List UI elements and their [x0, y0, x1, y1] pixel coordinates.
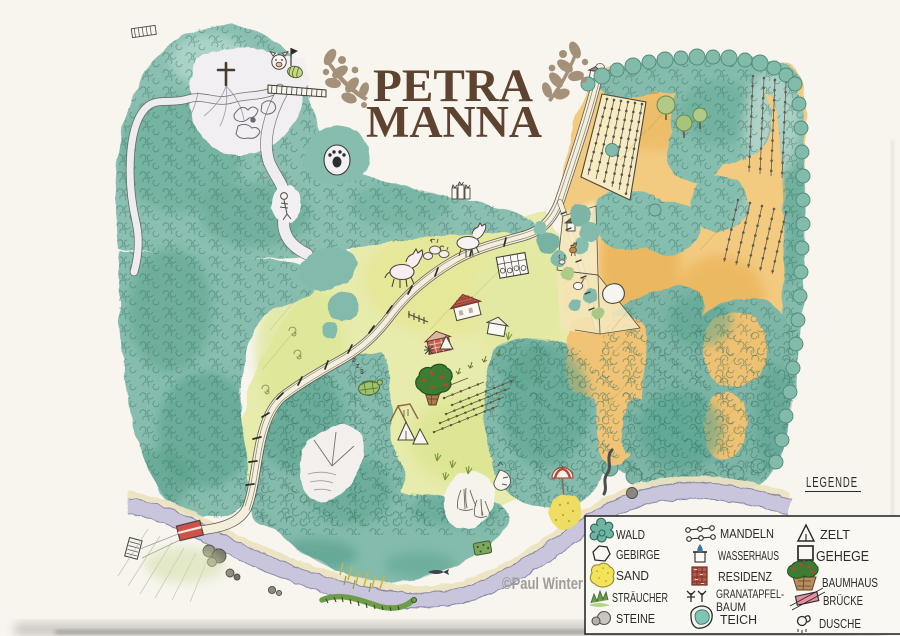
- svg-text:BRÜCKE: BRÜCKE: [823, 594, 863, 608]
- svg-text:RESIDENZ: RESIDENZ: [718, 570, 772, 584]
- svg-text:GEHEGE: GEHEGE: [816, 549, 869, 565]
- svg-text:TEICH: TEICH: [720, 613, 757, 627]
- svg-text:STRÄUCHER: STRÄUCHER: [612, 591, 668, 605]
- svg-text:MANNA: MANNA: [366, 97, 543, 147]
- svg-text:GEBIRGE: GEBIRGE: [616, 548, 660, 562]
- svg-text:SAND: SAND: [616, 569, 649, 583]
- svg-text:©Paul Winter: ©Paul Winter: [502, 574, 583, 593]
- svg-text:3: 3: [360, 369, 364, 376]
- svg-text:ZELT: ZELT: [820, 528, 850, 542]
- svg-text:GRANATAPFEL-: GRANATAPFEL-: [716, 589, 784, 601]
- svg-text:BAUMHAUS: BAUMHAUS: [822, 576, 878, 590]
- svg-text:WALD: WALD: [616, 528, 645, 542]
- svg-text:LEGENDE: LEGENDE: [806, 474, 858, 491]
- svg-text:DUSCHE: DUSCHE: [819, 617, 861, 631]
- svg-text:STEINE: STEINE: [616, 612, 655, 626]
- svg-text:WASSERHAUS: WASSERHAUS: [718, 549, 779, 563]
- svg-text:MANDELN: MANDELN: [720, 527, 774, 541]
